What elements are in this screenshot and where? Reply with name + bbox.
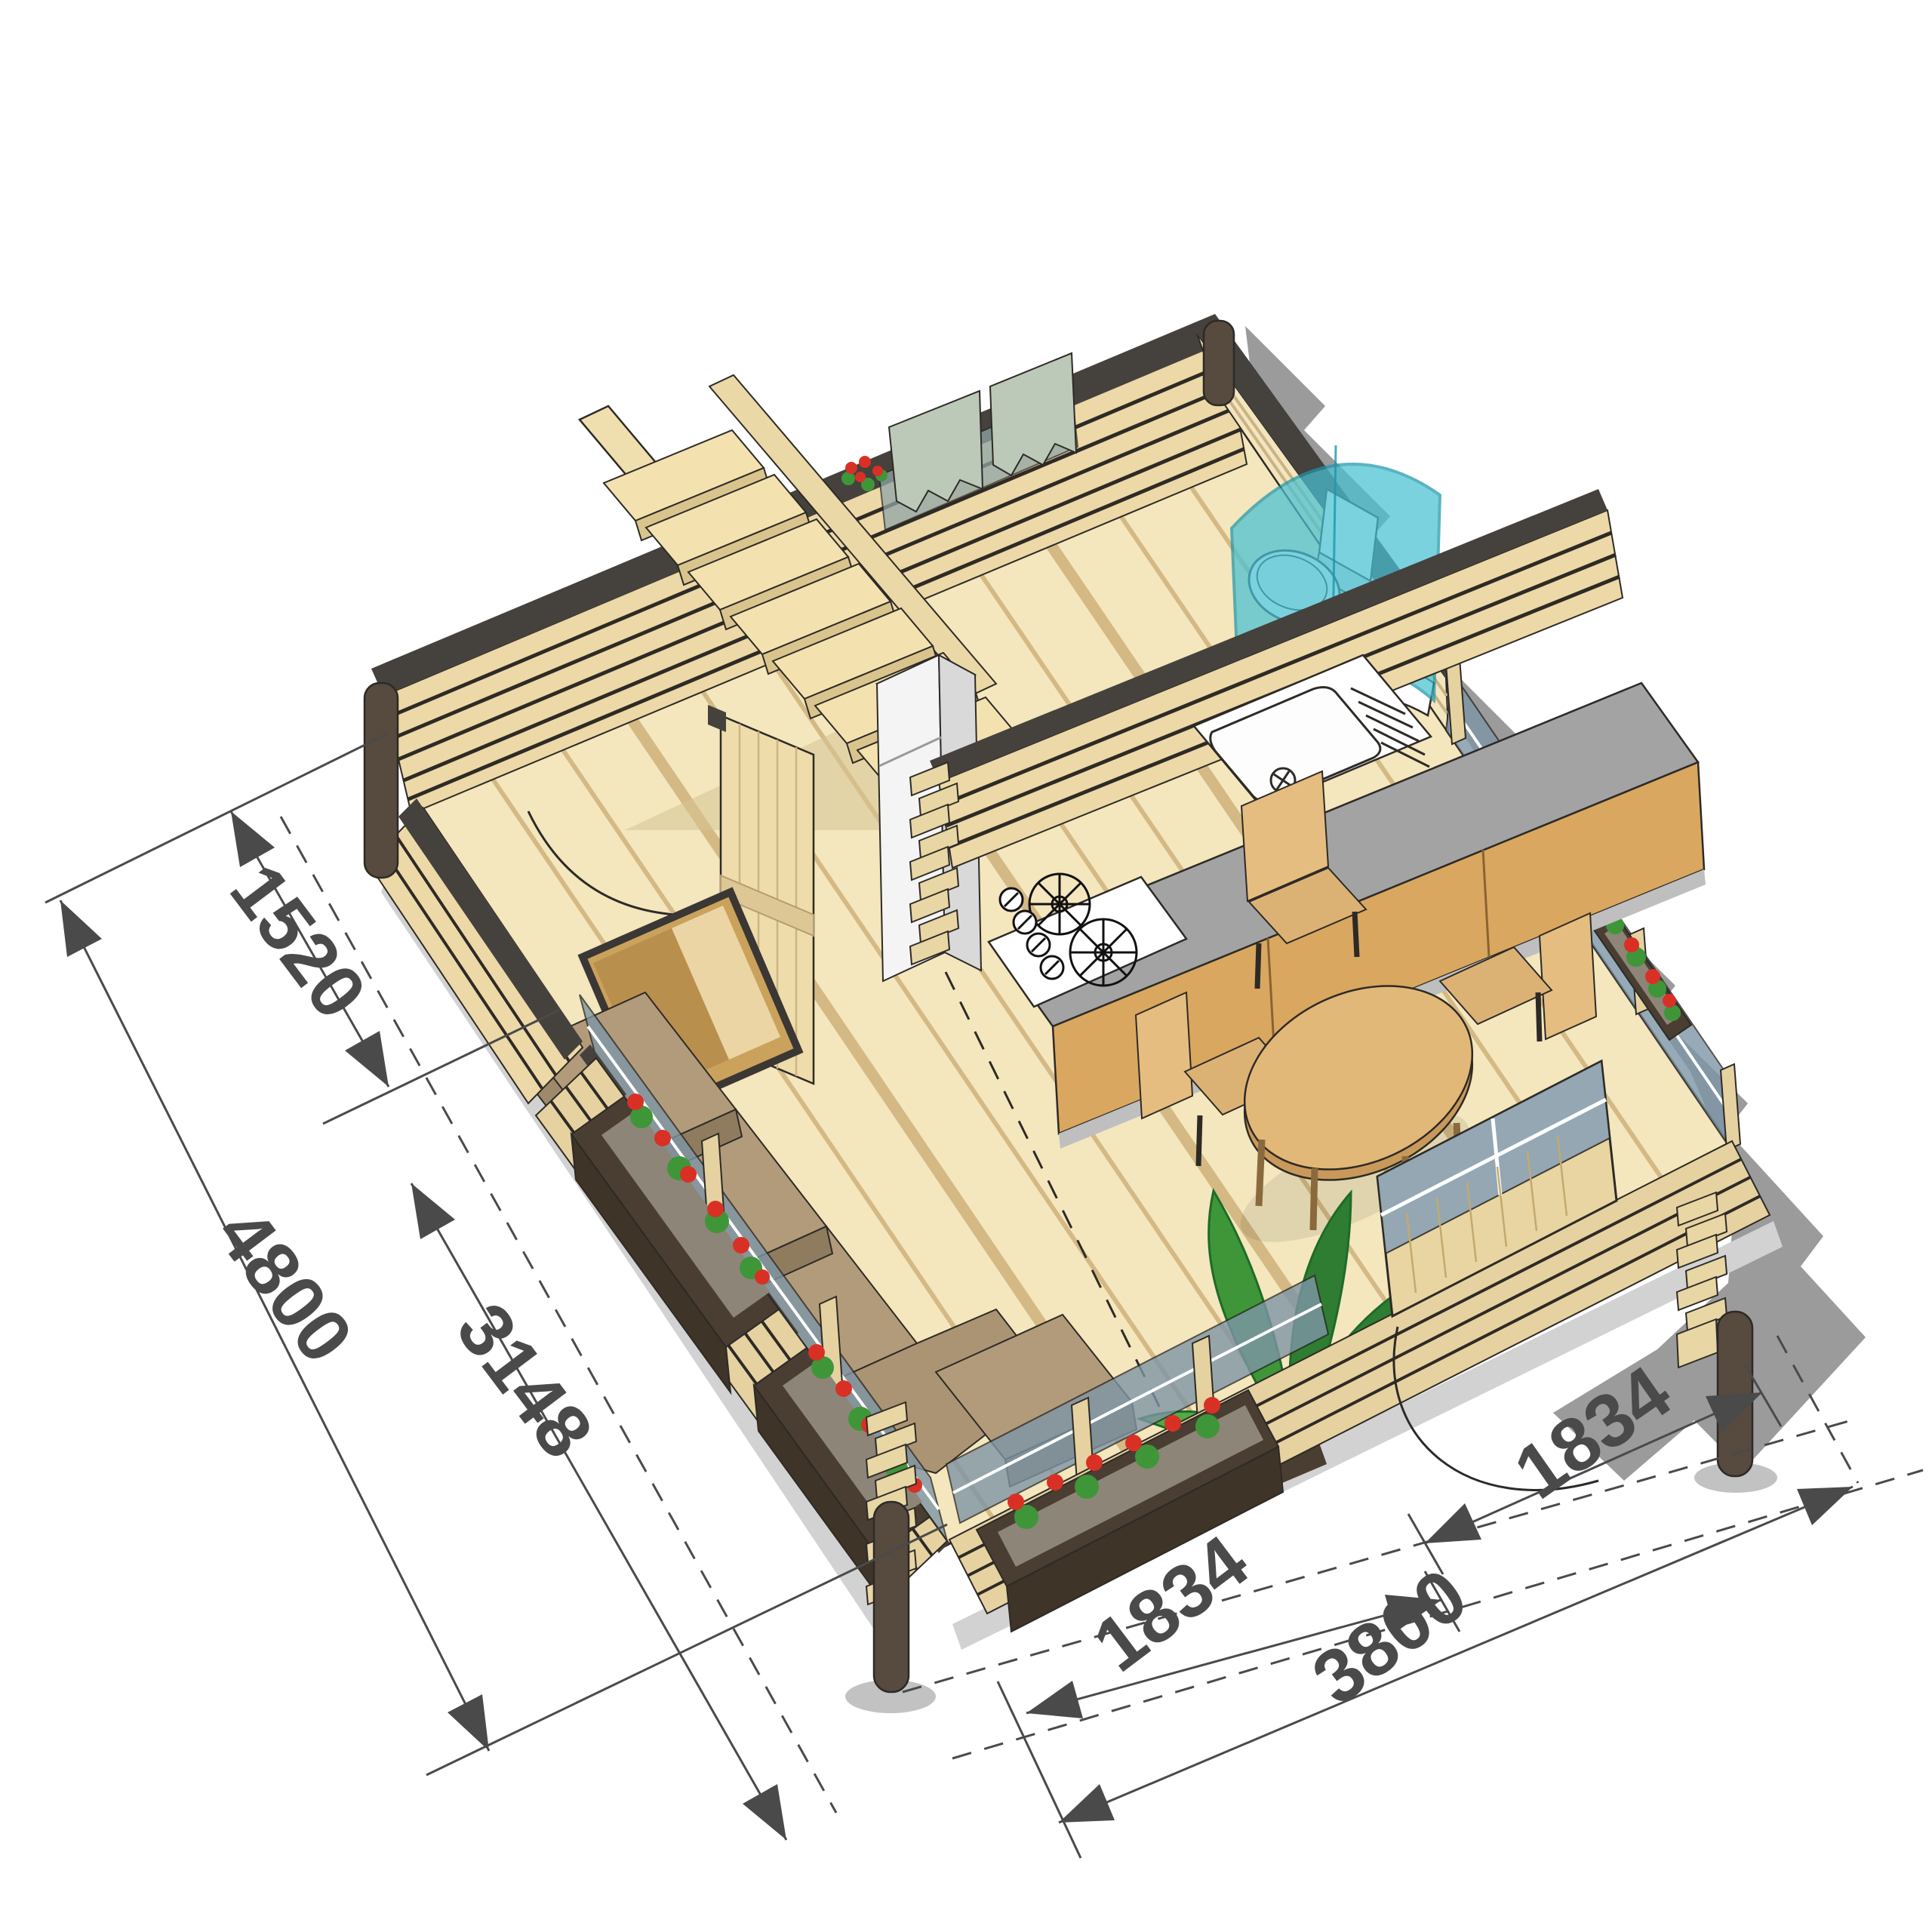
corner-post [874,1502,909,1692]
dimension-label-1520: 1520 [214,849,382,1034]
dimension-label-3800: 3800 [1297,1552,1482,1721]
corner-post [1204,321,1234,405]
dimension-label-3148: 3148 [440,1288,608,1473]
floor-plan-canvas: 1520 4800 3148 1834 3800 1834 [0,0,1932,1932]
cabin-isometric-drawing: 1520 4800 3148 1834 3800 1834 [0,0,1932,1932]
dimension-label-4800: 4800 [200,1193,368,1378]
corner-post [365,683,398,878]
